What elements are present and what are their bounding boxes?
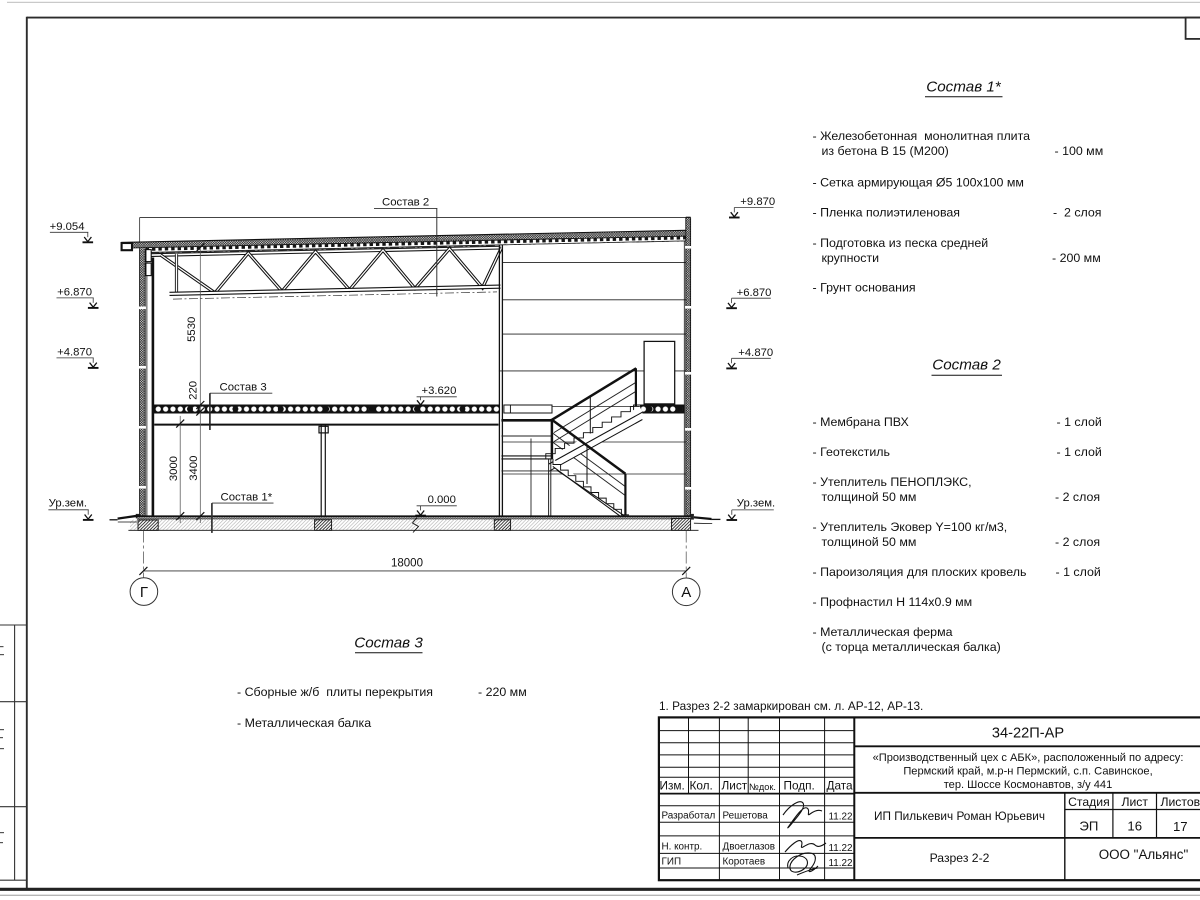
svg-text:3400: 3400 [188,456,200,481]
svg-text:из бетона В 15 (М200): из бетона В 15 (М200) [822,144,949,158]
svg-text:+6.870: +6.870 [737,287,772,299]
svg-text:Дата: Дата [827,779,854,793]
svg-text:А: А [681,584,691,601]
svg-text:Разработал: Разработал [662,811,716,822]
svg-text:11.22: 11.22 [829,858,853,869]
svg-text:Кол.: Кол. [690,779,713,793]
svg-text:- 100 мм: - 100 мм [1055,144,1104,158]
svg-text:Стадия: Стадия [1068,795,1110,809]
svg-text:16: 16 [1127,819,1142,834]
svg-text:ООО "Альянс": ООО "Альянс" [1099,847,1189,862]
svg-text:3000: 3000 [168,456,180,481]
svg-text:«Производственный цех с АБК»,: «Производственный цех с АБК», расположен… [873,752,1184,764]
svg-text:крупности: крупности [822,251,880,265]
svg-text:- Пароизоляция для плоских кро: - Пароизоляция для плоских кровель [813,565,1027,579]
svg-text:Лист: Лист [1121,795,1148,809]
svg-text:толщиной 50 мм: толщиной 50 мм [822,490,917,504]
svg-text:Лист: Лист [722,779,748,793]
svg-text:- 1 слой: - 1 слой [1057,415,1102,429]
svg-text:Ур.зем.: Ур.зем. [49,497,87,509]
svg-text:Состав 2: Состав 2 [382,197,429,209]
svg-text:- Пленка полиэтиленовая: - Пленка полиэтиленовая [813,206,961,220]
svg-text:Г: Г [140,584,148,601]
svg-text:- 1 слой: - 1 слой [1057,445,1102,459]
svg-text:+4.870: +4.870 [57,347,92,359]
svg-text:- Металлическая ферма: - Металлическая ферма [813,625,953,639]
svg-text:Изм.: Изм. [660,779,685,793]
svg-text:Коротаев: Коротаев [723,857,766,868]
svg-text:+9.870: +9.870 [740,196,775,208]
svg-text:1. Разрез 2-2 замаркирован см.: 1. Разрез 2-2 замаркирован см. л. АР-12,… [659,699,923,713]
svg-text:- Подготовка из песка средней: - Подготовка из песка средней [813,236,989,250]
svg-text:Н. контр.: Н. контр. [662,842,703,853]
svg-text:- Сетка армирующая Ø5 100х100: - Сетка армирующая Ø5 100х100 мм [813,176,1024,190]
svg-text:11.22: 11.22 [829,812,853,823]
svg-text:5530: 5530 [186,317,198,342]
svg-text:Состав 2: Состав 2 [932,357,1001,374]
svg-text:+3.620: +3.620 [422,385,457,397]
svg-text:№док.: №док. [749,782,776,792]
svg-text:- 2 слоя: - 2 слоя [1053,206,1102,220]
svg-text:17: 17 [1173,819,1188,834]
svg-text:толщиной 50 мм: толщиной 50 мм [822,535,917,549]
svg-text:- Железобетонная монолитная п: - Железобетонная монолитная плита [813,129,1031,143]
svg-text:- 200 мм: - 200 мм [1052,251,1101,265]
svg-text:- Грунт основания: - Грунт основания [813,281,916,295]
svg-text:- Геотекстиль: - Геотекстиль [813,445,890,459]
svg-text:Состав 3: Состав 3 [354,635,423,652]
svg-text:ИП Пилькевич Роман Юрьевич: ИП Пилькевич Роман Юрьевич [874,809,1045,823]
svg-text:11.22: 11.22 [829,843,853,854]
svg-text:- Сборные ж/б плиты перекрыти: - Сборные ж/б плиты перекрытия [237,685,433,699]
svg-text:(с торца металлическая балка): (с торца металлическая балка) [822,640,1001,654]
svg-text:Листов: Листов [1160,795,1200,809]
svg-text:+4.870: +4.870 [738,347,773,359]
svg-text:- Утеплитель Эковер Y=100 кг/м: - Утеплитель Эковер Y=100 кг/м3, [813,520,1008,534]
svg-text:+6.870: +6.870 [57,287,92,299]
svg-text:ГИП: ГИП [662,857,682,868]
svg-text:тер. Шоссе Космонавтов, з/у 44: тер. Шоссе Космонавтов, з/у 441 [944,779,1113,791]
svg-text:Двоеглазов: Двоеглазов [723,842,776,853]
svg-text:- 220 мм: - 220 мм [478,685,527,699]
svg-text:0.000: 0.000 [428,494,456,506]
svg-text:- Утеплитель ПЕНОПЛЭКС,: - Утеплитель ПЕНОПЛЭКС, [813,475,972,489]
svg-text:Решетова: Решетова [723,811,769,822]
svg-text:Пермский край, м.р-н Пермский,: Пермский край, м.р-н Пермский, с.п. Сави… [903,766,1152,778]
svg-text:Состав 3: Состав 3 [220,381,267,393]
svg-text:- 2 слоя: - 2 слоя [1055,490,1100,504]
svg-text:Разрез 2-2: Разрез 2-2 [930,851,990,865]
svg-text:220: 220 [187,381,199,400]
svg-text:+9.054: +9.054 [50,221,85,233]
svg-text:Ур.зем.: Ур.зем. [737,498,775,510]
svg-text:Состав 1*: Состав 1* [221,491,273,503]
svg-text:ЭП: ЭП [1079,819,1098,834]
svg-text:Состав 1*: Состав 1* [926,79,1002,96]
svg-text:- Мембрана ПВХ: - Мембрана ПВХ [813,415,909,429]
svg-text:18000: 18000 [391,558,423,570]
svg-text:- Металлическая балка: - Металлическая балка [237,716,371,730]
svg-text:- 1 слой: - 1 слой [1056,565,1101,579]
svg-text:34-22П-АР: 34-22П-АР [992,726,1064,742]
svg-text:- Профнастил Н 114х0.9 мм: - Профнастил Н 114х0.9 мм [813,595,973,609]
svg-text:Подп.: Подп. [784,779,815,793]
svg-text:- 2 слоя: - 2 слоя [1055,535,1100,549]
